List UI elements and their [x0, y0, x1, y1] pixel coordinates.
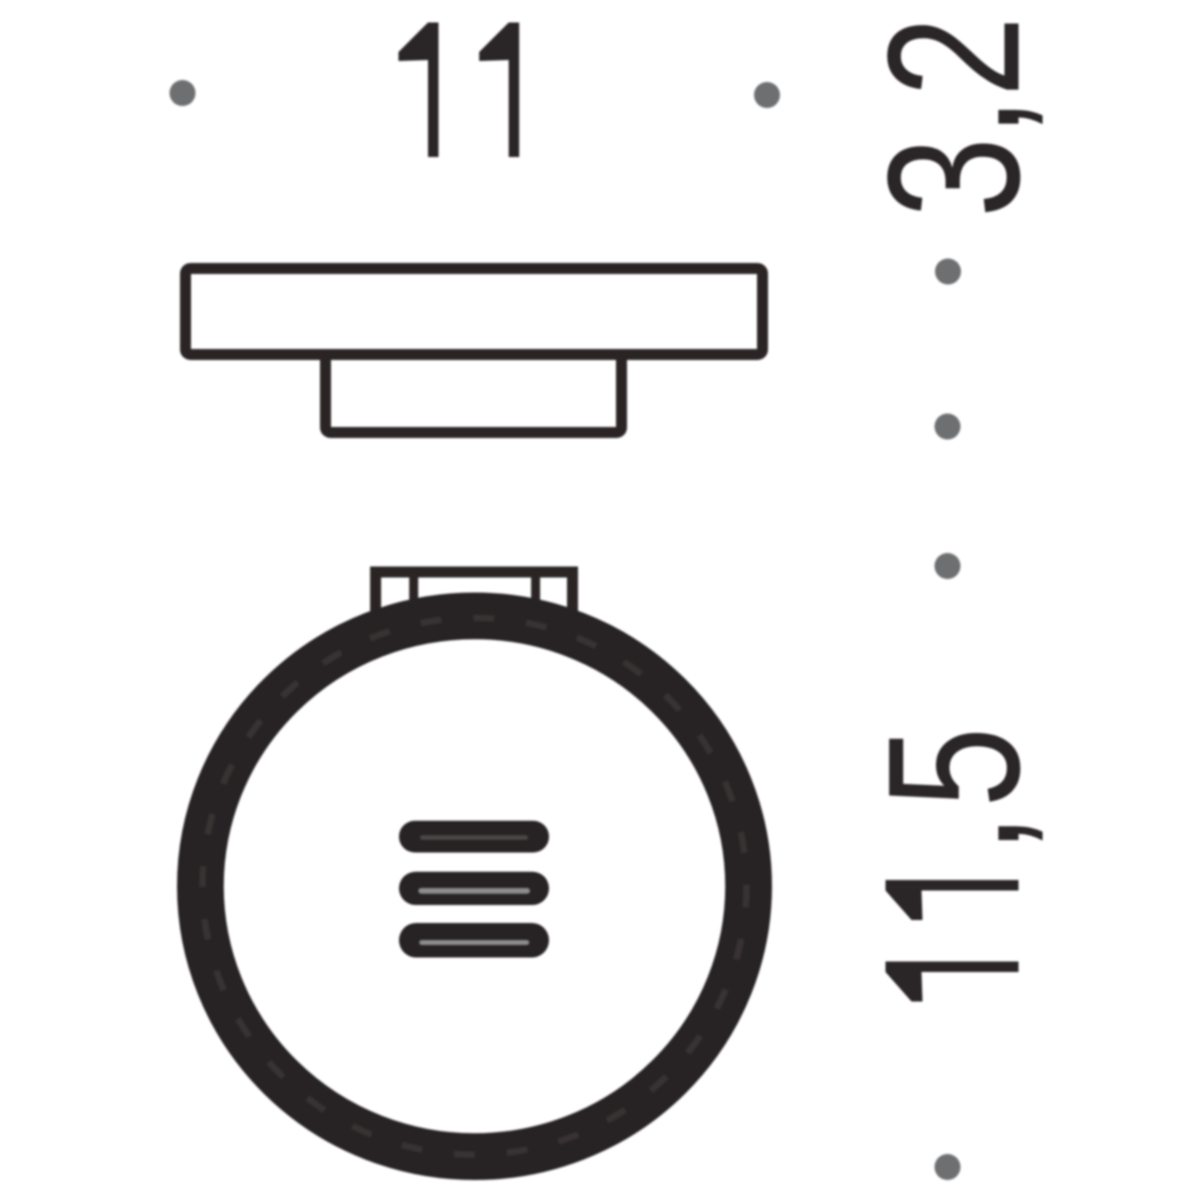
- svg-text:5: 5: [848, 727, 1059, 808]
- svg-text:,: ,: [848, 813, 1059, 853]
- svg-text:3,2: 3,2: [848, 16, 1059, 217]
